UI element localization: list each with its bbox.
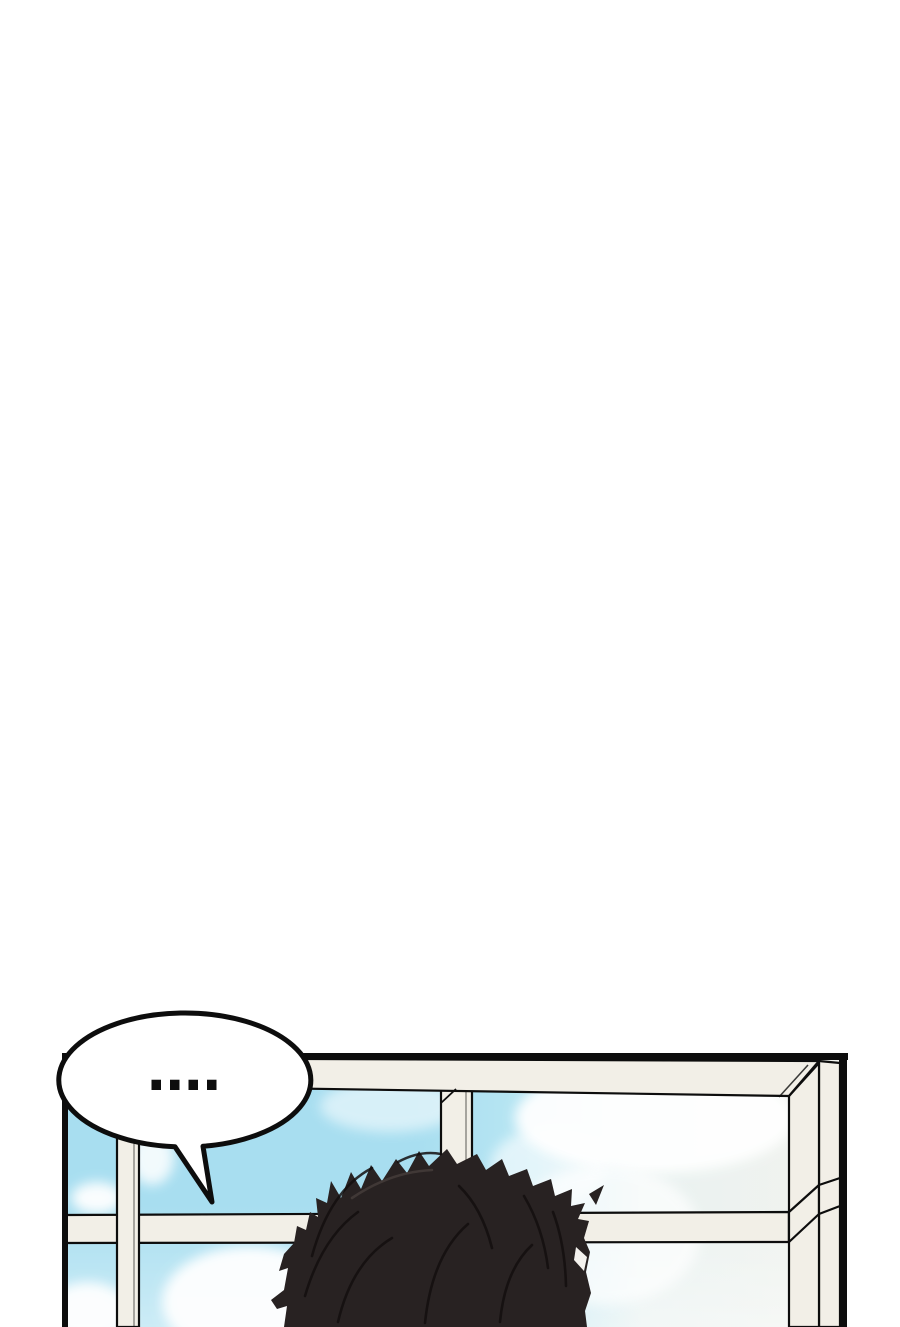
comic-page: .... <box>0 0 900 1327</box>
panel-border-right <box>839 1053 847 1327</box>
speech-bubble-text: .... <box>146 1040 220 1103</box>
cloud <box>71 1182 123 1214</box>
comic-page-image: .... <box>0 0 900 1327</box>
